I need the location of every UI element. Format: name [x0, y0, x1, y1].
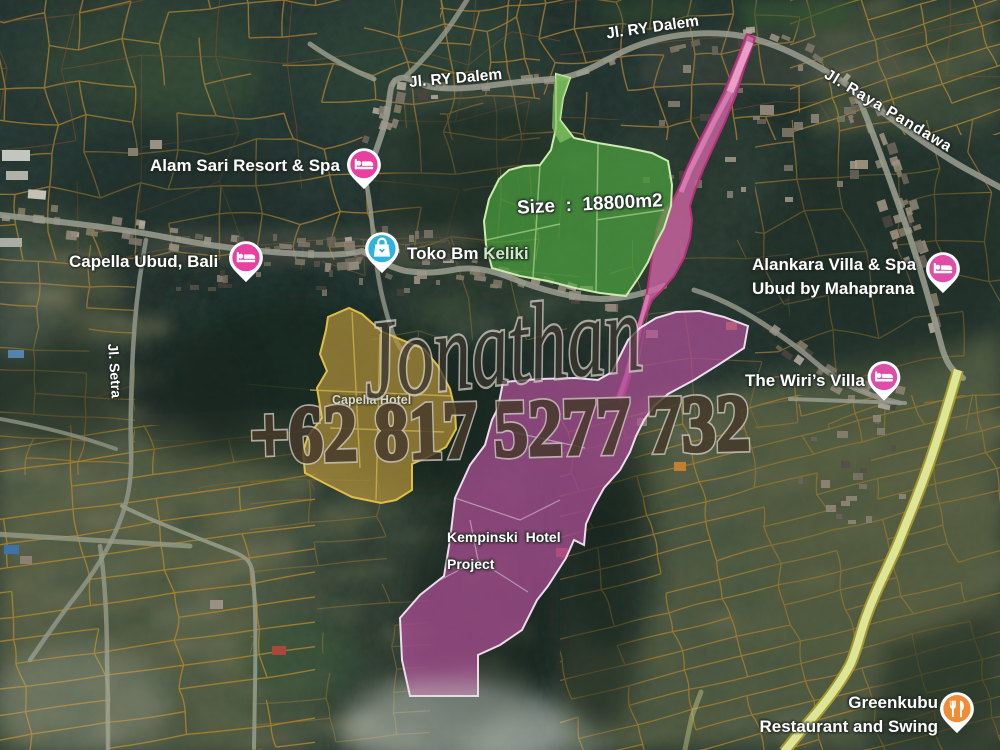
svg-text:+62 817 5277 732: +62 817 5277 732 — [249, 377, 751, 480]
